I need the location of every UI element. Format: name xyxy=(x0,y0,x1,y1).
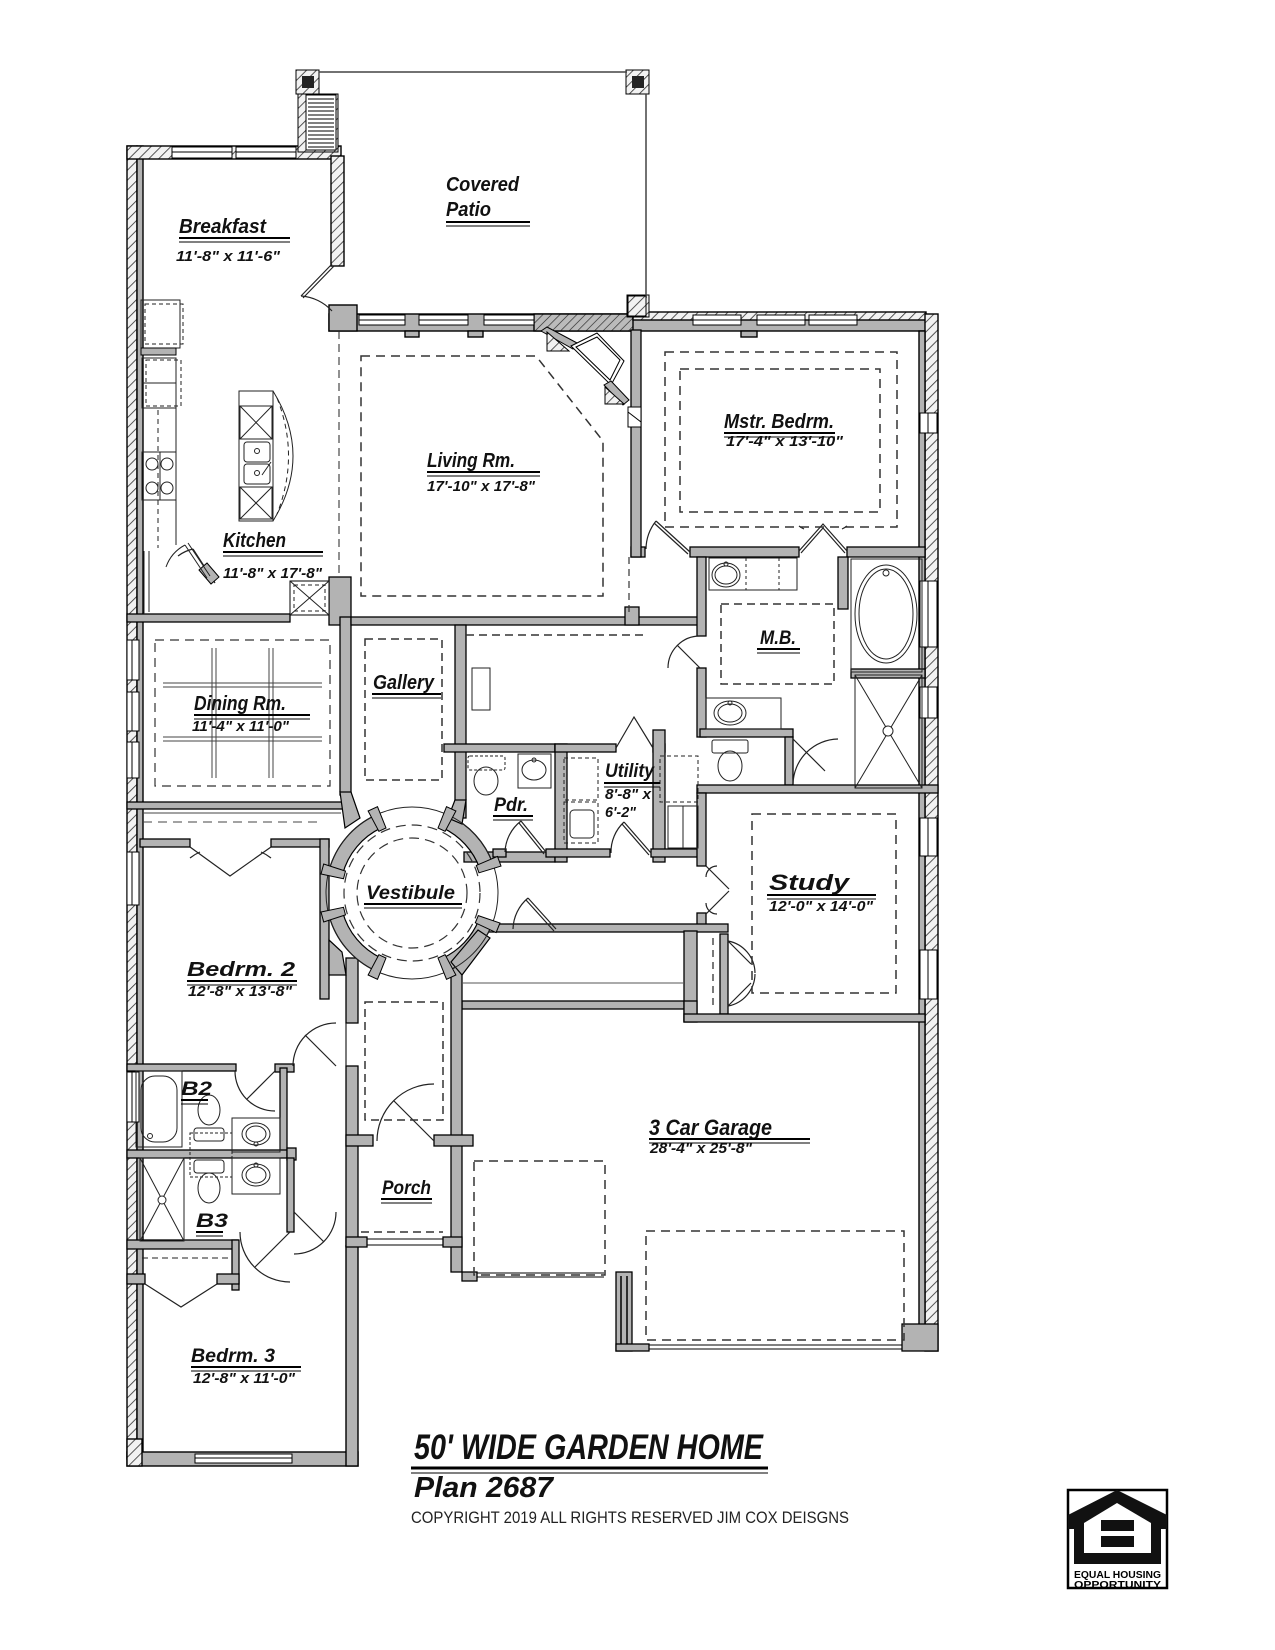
svg-text:Breakfast: Breakfast xyxy=(179,216,267,238)
svg-text:Mstr. Bedrm.: Mstr. Bedrm. xyxy=(724,411,834,433)
svg-text:Plan 2687: Plan 2687 xyxy=(414,1472,555,1504)
svg-text:Living Rm.: Living Rm. xyxy=(427,450,515,472)
svg-text:12'-0" x 14'-0": 12'-0" x 14'-0" xyxy=(769,898,874,915)
svg-text:Bedrm. 2: Bedrm. 2 xyxy=(187,959,295,981)
svg-text:28'-4" x 25'-8": 28'-4" x 25'-8" xyxy=(649,1140,753,1157)
svg-text:Vestibule: Vestibule xyxy=(366,883,455,904)
svg-text:17'-10" x 17'-8": 17'-10" x 17'-8" xyxy=(427,478,536,495)
svg-text:B3: B3 xyxy=(196,1211,229,1232)
svg-text:17'-4" x 13'-10": 17'-4" x 13'-10" xyxy=(726,433,844,450)
svg-text:3 Car Garage: 3 Car Garage xyxy=(649,1115,772,1140)
svg-text:Dining Rm.: Dining Rm. xyxy=(194,693,286,715)
svg-text:Patio: Patio xyxy=(446,199,491,221)
svg-text:11'-4" x 11'-0": 11'-4" x 11'-0" xyxy=(192,718,290,735)
svg-text:B2: B2 xyxy=(181,1079,213,1100)
svg-text:11'-8" x 11'-6": 11'-8" x 11'-6" xyxy=(176,248,281,265)
svg-text:50' WIDE GARDEN HOME: 50' WIDE GARDEN HOME xyxy=(414,1428,764,1467)
svg-text:COPYRIGHT 2019 ALL RIGHTS RESE: COPYRIGHT 2019 ALL RIGHTS RESERVED JIM C… xyxy=(411,1508,849,1527)
svg-text:OPPORTUNITY: OPPORTUNITY xyxy=(1074,1580,1161,1591)
svg-text:M.B.: M.B. xyxy=(760,628,796,649)
svg-text:Porch: Porch xyxy=(382,1178,431,1199)
svg-text:11'-8" x 17'-8": 11'-8" x 17'-8" xyxy=(223,565,323,582)
svg-text:12'-8" x 11'-0": 12'-8" x 11'-0" xyxy=(193,1370,296,1387)
svg-text:Bedrm. 3: Bedrm. 3 xyxy=(191,1346,275,1367)
svg-text:Pdr.: Pdr. xyxy=(494,795,528,816)
svg-text:Kitchen: Kitchen xyxy=(223,530,286,552)
svg-text:8'-8" x: 8'-8" x xyxy=(605,786,652,803)
svg-text:6'-2": 6'-2" xyxy=(605,804,637,821)
svg-text:Utility: Utility xyxy=(605,761,655,782)
svg-text:Study: Study xyxy=(769,870,851,895)
svg-text:Gallery: Gallery xyxy=(373,672,435,694)
svg-text:12'-8" x 13'-8": 12'-8" x 13'-8" xyxy=(188,983,293,1000)
svg-text:Covered: Covered xyxy=(446,174,520,196)
